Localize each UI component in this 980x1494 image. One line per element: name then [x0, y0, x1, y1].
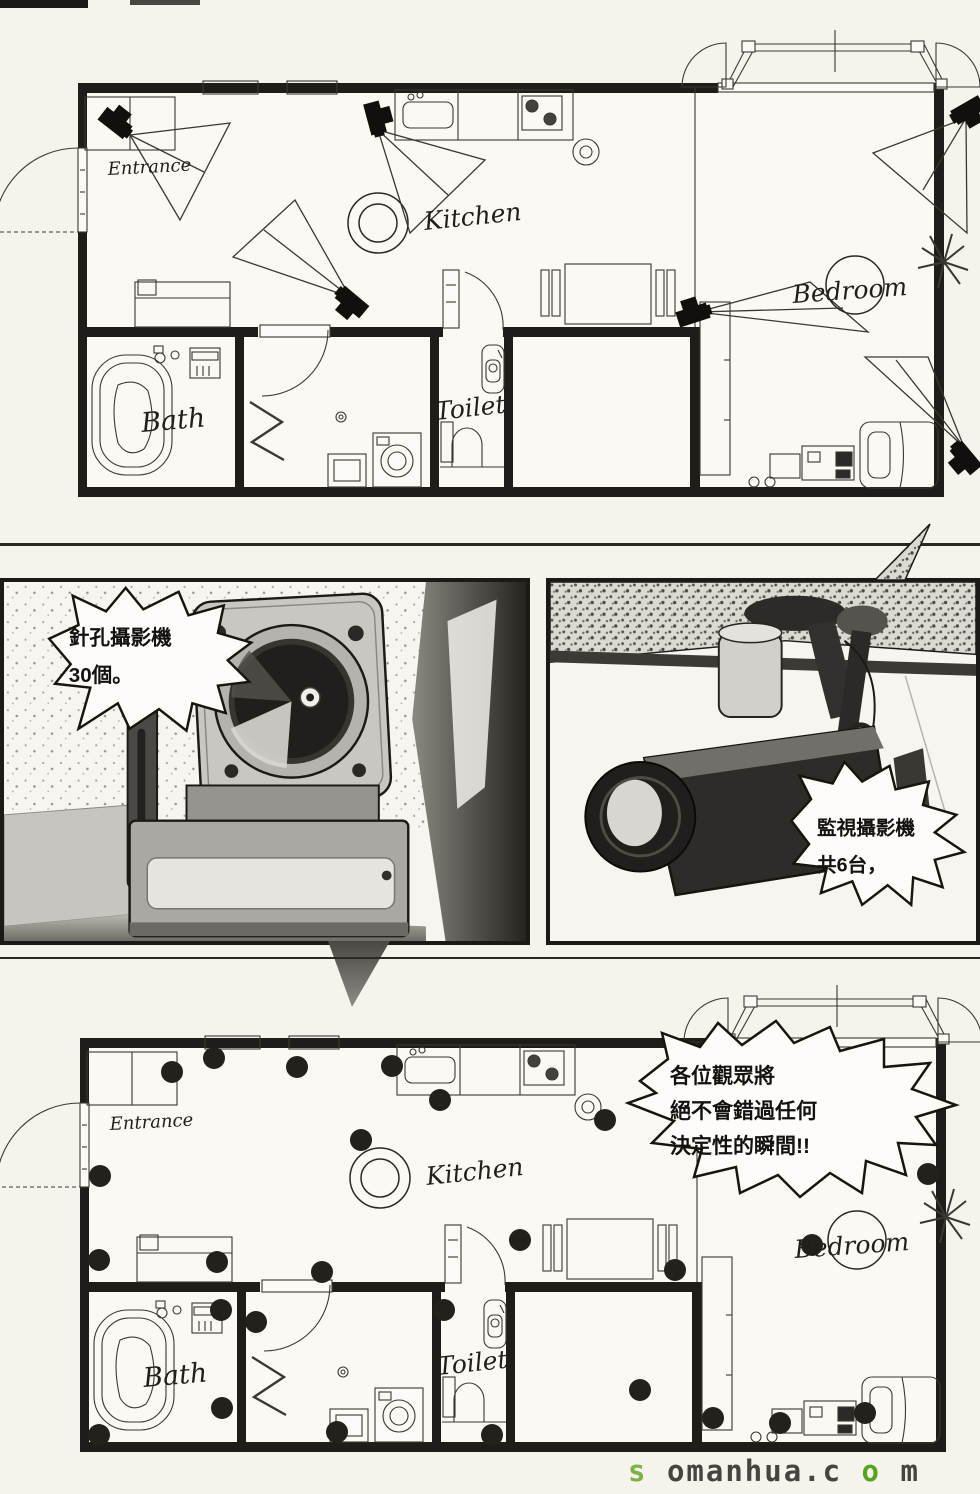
bubble-line: 共6台， — [817, 854, 887, 877]
speech-bubble-surveillance: 監視攝影機 共6台， — [791, 762, 964, 905]
bubble-line: 針孔攝影機 — [69, 626, 172, 650]
bubble-line: 絕不會錯過任何 — [670, 1099, 817, 1123]
panel-separator-line — [0, 957, 980, 959]
watermark: s omanhua.c o m — [620, 1450, 980, 1494]
room-label-bath: Bath — [141, 1357, 209, 1394]
surveillance-camera-panel: 監視攝影機 共6台， — [546, 578, 980, 945]
room-label-bath: Bath — [139, 402, 207, 439]
bubble-line: 監視攝影機 — [817, 816, 915, 839]
bottom-floorplan-panel: Entrance Kitchen Bedroom Bath Toilet 各位觀… — [0, 985, 980, 1494]
bubble-line: 決定性的瞬間!! — [670, 1134, 810, 1158]
panel-separator-line — [0, 543, 980, 546]
bubble-line: 30個。 — [69, 663, 133, 687]
watermark-segment: omanhua.c — [667, 1454, 842, 1488]
ceiling-spike — [845, 520, 955, 580]
top-floorplan-panel: Entrance Kitchen Bedroom Bath Toilet — [0, 0, 980, 540]
svg-text:s omanhua.c o: s omanhua.c o m — [628, 1454, 920, 1488]
watermark-segment: m — [900, 1454, 919, 1488]
watermark-segment: s — [628, 1454, 647, 1488]
pinhole-camera-panel: 針孔攝影機 30個。 — [0, 578, 530, 945]
manga-page: Entrance Kitchen Bedroom Bath Toilet — [0, 0, 980, 1494]
watermark-segment: o — [862, 1454, 881, 1488]
room-label-entrance: Entrance — [106, 155, 192, 180]
bubble-line: 各位觀眾將 — [669, 1064, 775, 1088]
room-label-entrance: Entrance — [108, 1110, 194, 1135]
